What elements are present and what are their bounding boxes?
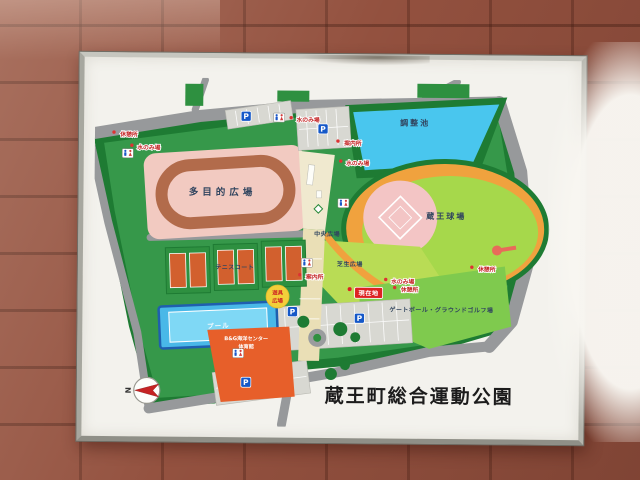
- label-water-fountain: 水のみ場: [137, 143, 160, 151]
- label-water-fountain: 水のみ場: [391, 278, 414, 286]
- grass-patch: [417, 84, 469, 98]
- playground-badge: 遊具 広場: [266, 285, 289, 308]
- tennis-court: [265, 247, 282, 281]
- bush: [297, 316, 309, 328]
- park-map-drawing: P: [92, 77, 569, 429]
- restroom-icon: [338, 199, 349, 208]
- label-lawn-plaza: 芝生広場: [337, 260, 363, 268]
- restroom-icon: [233, 349, 244, 358]
- label-pond: 調整池: [400, 118, 430, 128]
- compass-north-letter: N: [124, 387, 133, 393]
- stadium-entrance-plaza: [492, 245, 502, 255]
- bush: [333, 322, 347, 336]
- parking-icon: [354, 313, 364, 323]
- label-rest-area: 休憩所: [477, 265, 496, 273]
- park-map-sign-board: P: [76, 52, 586, 445]
- monument-building: [316, 191, 321, 198]
- grass-patch: [277, 91, 309, 102]
- dirt-stain: [300, 55, 430, 66]
- compass: N: [124, 377, 160, 403]
- tennis-court: [169, 253, 186, 287]
- bush: [340, 360, 350, 370]
- parking-icon: [318, 124, 328, 134]
- parking-icon: [241, 111, 251, 121]
- restroom-icon: [301, 258, 312, 267]
- label-water-fountain: 水のみ場: [296, 116, 319, 124]
- label-rest-area: 休憩所: [400, 286, 419, 294]
- wall-light-patch: [0, 0, 220, 60]
- label-playground-1: 遊具: [272, 288, 283, 296]
- grass-patch: [185, 84, 203, 106]
- label-multipurpose-field: 多目的広場: [189, 186, 257, 199]
- restroom-icon: [274, 113, 285, 122]
- label-rest-area: 休憩所: [119, 130, 138, 138]
- restroom-icon: [122, 149, 133, 158]
- parking-icon: [287, 307, 297, 317]
- label-information: 案内所: [343, 139, 362, 147]
- label-pool: プール: [207, 321, 230, 331]
- label-stadium: 蔵王球場: [425, 211, 466, 221]
- sign-title: 蔵王町総合運動公園: [325, 381, 514, 410]
- label-information: 案内所: [305, 273, 324, 281]
- label-current-location: 現在地: [359, 289, 379, 297]
- parking-icon: [241, 377, 251, 387]
- label-playground-2: 広場: [272, 296, 283, 304]
- label-gateball: ゲートボール・グラウンドゴルフ場: [389, 306, 493, 315]
- bush: [350, 332, 360, 342]
- label-water-fountain: 水のみ場: [346, 159, 369, 167]
- label-tennis-courts: テニスコート: [215, 264, 254, 271]
- bush: [325, 368, 337, 380]
- tennis-court: [189, 253, 206, 287]
- photo-scene: P: [0, 0, 640, 480]
- label-central-plaza: 中央広場: [314, 230, 340, 238]
- roundabout-island: [313, 334, 321, 342]
